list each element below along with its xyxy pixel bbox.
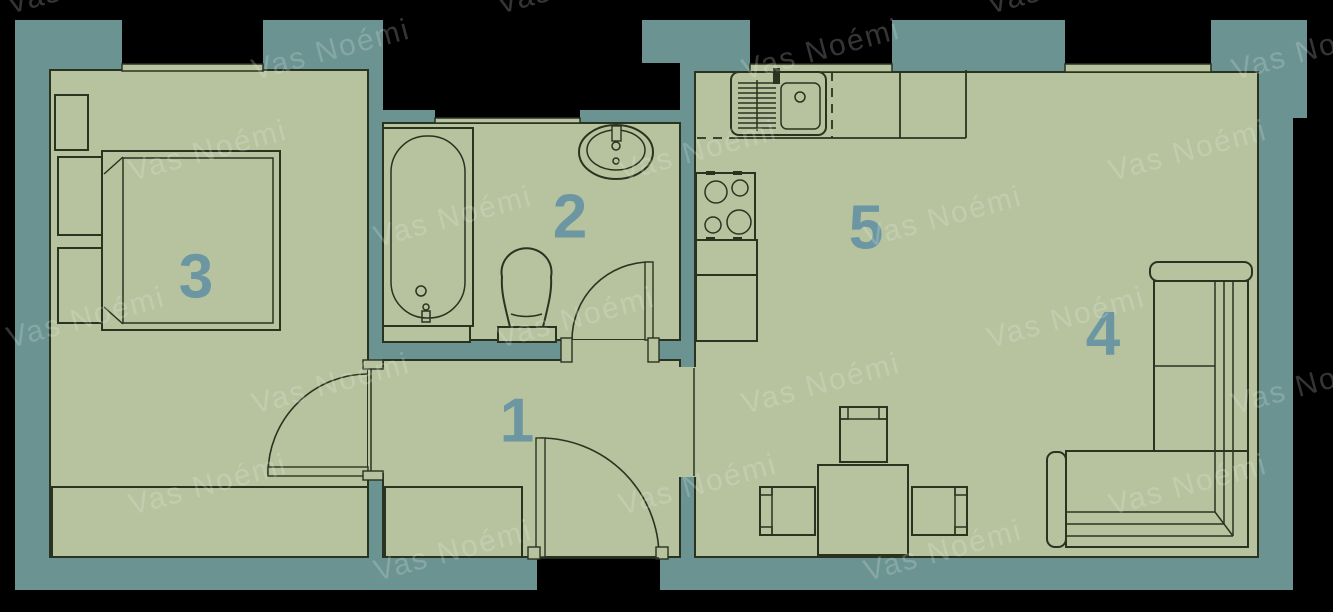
- stove-knob-2: [733, 171, 742, 175]
- room-label-1: 1: [500, 387, 534, 456]
- kitchen-lower-cabinet-1: [696, 240, 757, 275]
- bathroom-sink-faucet: [612, 126, 621, 141]
- bedroom-door-jamb-bottom: [363, 471, 383, 480]
- facade-recess: [642, 63, 680, 110]
- dining-chair-top: [840, 407, 887, 462]
- kitchen-lower-cabinet-2: [696, 275, 757, 341]
- window-sill-bedroom: [122, 64, 263, 71]
- dining-table: [818, 465, 908, 555]
- window-notch-kitchen-right: [1065, 0, 1211, 64]
- nightstand-upper: [58, 157, 102, 235]
- dining-chair-right: [912, 487, 967, 535]
- window-sill-kitchen-right: [1065, 64, 1211, 72]
- floor-plan-image: 1 2 3 4 5 Vas NoémiVas NoémiVas NoémiVas…: [0, 0, 1333, 612]
- window-sill-bathroom: [435, 118, 580, 123]
- entry-notch: [537, 557, 660, 602]
- entry-door-jamb-right: [656, 547, 668, 559]
- entry-door-jamb-left: [528, 547, 540, 559]
- entry-door-leaf: [536, 438, 545, 557]
- window-notch-bedroom: [122, 0, 263, 64]
- bathtub-step: [383, 326, 470, 342]
- floor-plan-svg: 1 2 3 4 5 Vas NoémiVas NoémiVas NoémiVas…: [0, 0, 1333, 612]
- stove-knob-1: [706, 171, 715, 175]
- sofa-armrest-top: [1150, 262, 1252, 281]
- bathroom-door-jamb-left: [561, 338, 572, 362]
- room-label-3: 3: [179, 243, 213, 312]
- sofa-armrest-left: [1047, 452, 1066, 547]
- doorway-bathroom: [571, 340, 651, 361]
- bathroom-door-jamb-right: [648, 338, 659, 362]
- dining-chair-left: [760, 487, 815, 535]
- wardrobe: [55, 95, 88, 150]
- room-label-2: 2: [553, 183, 587, 252]
